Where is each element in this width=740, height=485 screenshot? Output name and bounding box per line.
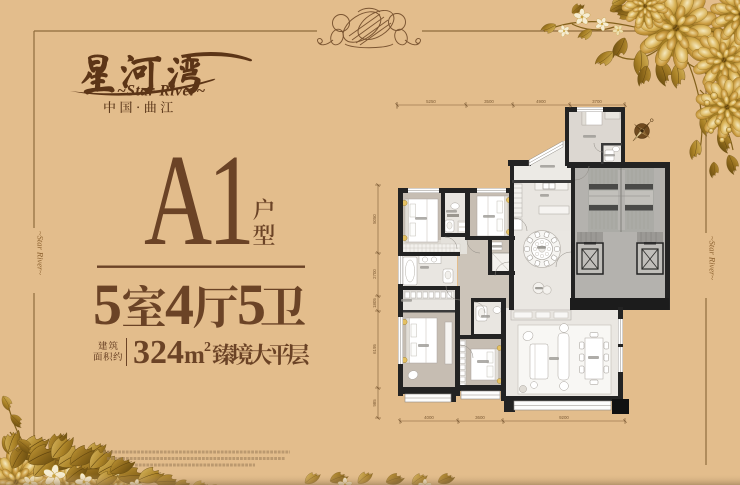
svg-text:3700: 3700 bbox=[592, 99, 602, 104]
svg-text:324: 324 bbox=[133, 334, 184, 371]
svg-text:3600: 3600 bbox=[475, 415, 485, 420]
svg-text:~Star River~: ~Star River~ bbox=[36, 231, 46, 275]
svg-text:9200: 9200 bbox=[559, 415, 569, 420]
svg-text:2: 2 bbox=[204, 340, 211, 355]
svg-text:5: 5 bbox=[93, 272, 122, 337]
svg-text:4: 4 bbox=[165, 272, 194, 337]
svg-text:1805: 1805 bbox=[372, 298, 377, 308]
svg-text:5050: 5050 bbox=[372, 214, 377, 224]
svg-text:5: 5 bbox=[237, 272, 266, 337]
svg-text:6195: 6195 bbox=[372, 344, 377, 354]
svg-text:A1: A1 bbox=[144, 127, 251, 273]
svg-text:~Star River~: ~Star River~ bbox=[117, 83, 206, 100]
svg-text:4000: 4000 bbox=[424, 415, 434, 420]
svg-text:3500: 3500 bbox=[484, 99, 494, 104]
svg-text:2700: 2700 bbox=[372, 269, 377, 279]
svg-text:m: m bbox=[184, 342, 205, 369]
svg-text:985: 985 bbox=[372, 399, 377, 407]
svg-text:4900: 4900 bbox=[536, 99, 546, 104]
svg-text:5250: 5250 bbox=[426, 99, 436, 104]
svg-text:~Star River~: ~Star River~ bbox=[708, 236, 718, 280]
